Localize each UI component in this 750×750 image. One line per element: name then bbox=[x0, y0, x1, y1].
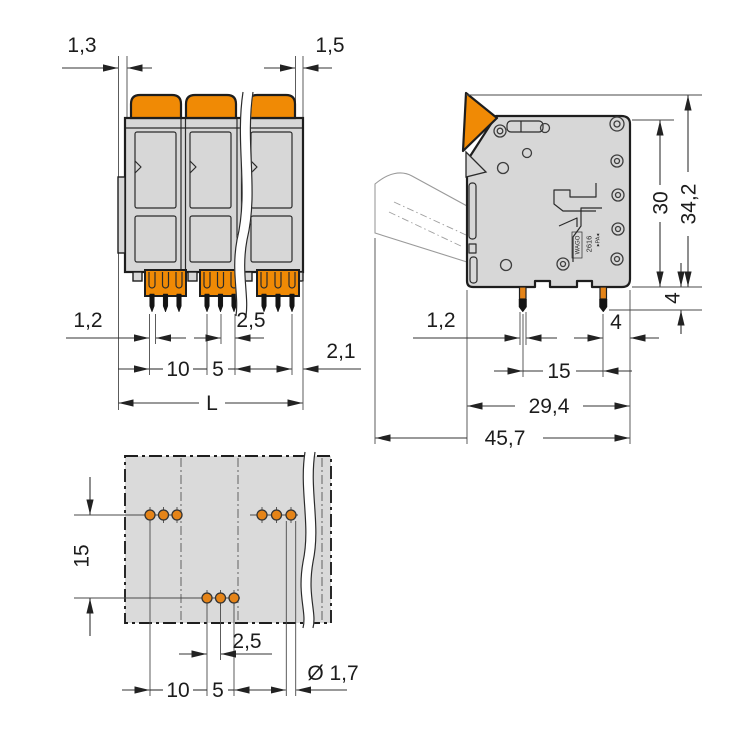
dim-front-1-5: 1,5 bbox=[315, 34, 344, 57]
solder-pad bbox=[272, 510, 282, 520]
dim-side-4-horizontal: 4 bbox=[610, 311, 622, 334]
marking-series: 2616 bbox=[585, 236, 594, 253]
solder-pad bbox=[286, 510, 296, 520]
lever-caps bbox=[131, 95, 295, 118]
dim-side-45-7: 45,7 bbox=[485, 427, 526, 450]
pin-block bbox=[145, 270, 186, 296]
solder-pad bbox=[159, 510, 169, 520]
solder-pad bbox=[229, 593, 239, 603]
solder-pad bbox=[257, 510, 267, 520]
dim-side-29-4: 29,4 bbox=[529, 395, 570, 418]
marking-material: ▸PA◂ bbox=[596, 234, 602, 247]
lever-cap bbox=[186, 95, 236, 118]
terminal-housing-side bbox=[467, 116, 630, 287]
dim-side-30: 30 bbox=[650, 191, 673, 214]
dim-footprint-5: 5 bbox=[212, 679, 224, 702]
dim-footprint-10: 10 bbox=[166, 679, 189, 702]
dim-footprint-2-5: 2,5 bbox=[232, 630, 261, 653]
dim-front-5: 5 bbox=[212, 358, 224, 381]
side-pins bbox=[519, 287, 607, 312]
dim-side-1-2: 1,2 bbox=[426, 309, 455, 332]
dim-side-4-vertical: 4 bbox=[662, 292, 685, 304]
dim-front-1-3: 1,3 bbox=[67, 34, 96, 57]
dimension-drawing-canvas: 1,3 1,5 1,2 2,5 10 5 2,1 L bbox=[0, 0, 750, 750]
pin-blocks bbox=[145, 270, 299, 312]
housing-side-tab bbox=[118, 177, 125, 253]
dim-front-2-1: 2,1 bbox=[326, 340, 355, 363]
pin-block bbox=[257, 270, 299, 296]
dim-front-1-2: 1,2 bbox=[73, 309, 102, 332]
marking-brand: WAGO bbox=[576, 235, 582, 254]
terminal-housing-front bbox=[125, 118, 303, 272]
solder-pad bbox=[202, 593, 212, 603]
release-lever-open bbox=[375, 173, 467, 262]
dim-front-L: L bbox=[206, 392, 218, 415]
dim-side-34-2: 34,2 bbox=[678, 184, 701, 225]
front-view: 1,3 1,5 1,2 2,5 10 5 2,1 L bbox=[62, 34, 361, 415]
lever-cap bbox=[131, 95, 181, 118]
solder-pad bbox=[145, 510, 155, 520]
dim-front-10: 10 bbox=[166, 358, 189, 381]
technical-drawing-page: 1,3 1,5 1,2 2,5 10 5 2,1 L bbox=[0, 0, 750, 750]
solder-pad bbox=[216, 593, 226, 603]
solder-pad bbox=[172, 510, 182, 520]
side-view: WAGO 2616 ▸PA◂ bbox=[375, 93, 702, 450]
lever-cap bbox=[248, 95, 295, 118]
dim-footprint-hole-dia: Ø 1,7 bbox=[307, 662, 358, 685]
dim-front-2-5: 2,5 bbox=[236, 309, 265, 332]
dim-side-15: 15 bbox=[547, 360, 570, 383]
footprint-view: 15 2,5 10 5 Ø 1,7 bbox=[71, 452, 359, 702]
dim-footprint-15: 15 bbox=[71, 544, 94, 567]
